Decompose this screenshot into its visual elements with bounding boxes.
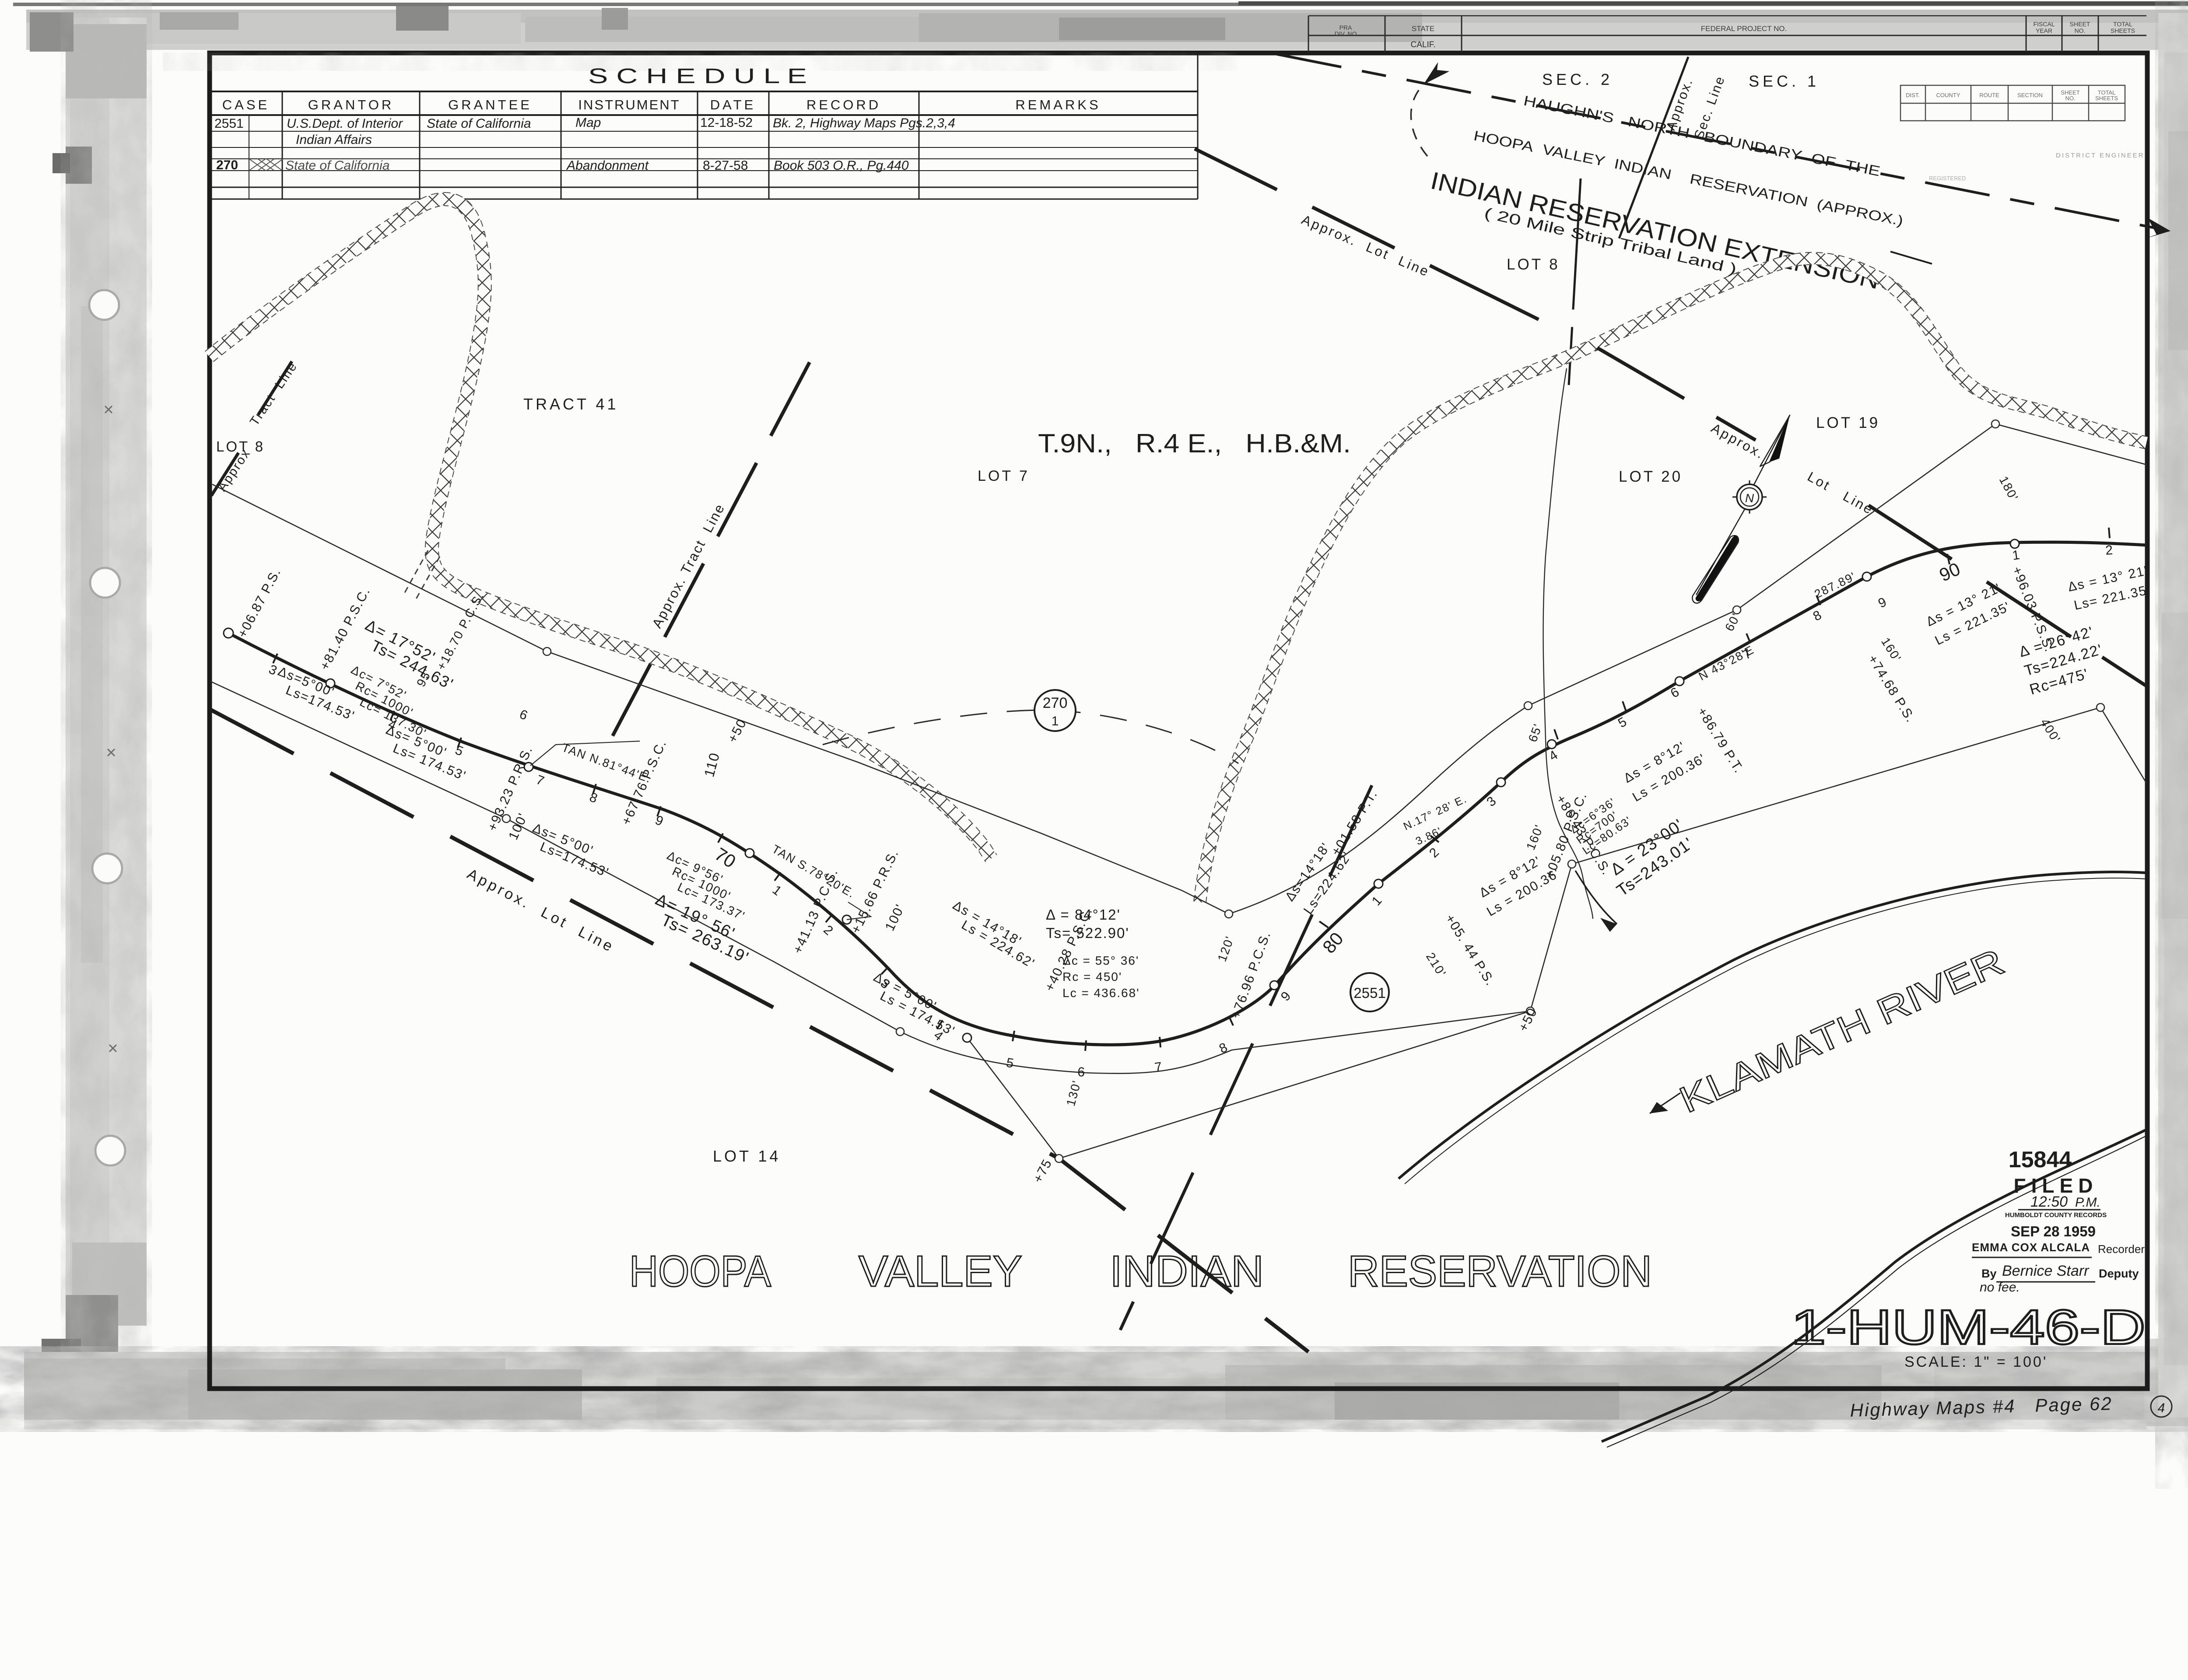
- svg-text:2551: 2551: [1353, 985, 1385, 1001]
- svg-text:INDIAN: INDIAN: [1110, 1247, 1264, 1296]
- svg-text:Δc = 55° 36': Δc = 55° 36': [1062, 954, 1139, 967]
- svg-text:6: 6: [1077, 1065, 1085, 1080]
- svg-text:15844: 15844: [2009, 1147, 2072, 1172]
- svg-text:1: 1: [1052, 714, 1059, 728]
- svg-text:DATE: DATE: [710, 97, 756, 112]
- svg-text:2551: 2551: [214, 116, 244, 131]
- svg-text:P.M.: P.M.: [2075, 1195, 2100, 1210]
- svg-text:Ts= 522.90': Ts= 522.90': [1046, 925, 1129, 941]
- svg-text:2: 2: [2105, 543, 2113, 558]
- svg-text:REGISTERED: REGISTERED: [1929, 175, 1966, 182]
- svg-text:Map: Map: [575, 115, 601, 130]
- svg-text:Abandonment: Abandonment: [566, 158, 649, 173]
- svg-text:LOT 8: LOT 8: [216, 438, 265, 455]
- svg-text:Bk. 2, Highway Maps Pgs.2,3,4: Bk. 2, Highway Maps Pgs.2,3,4: [773, 116, 955, 130]
- svg-text:DIST.: DIST.: [1906, 92, 1920, 98]
- svg-text:SEC. 1: SEC. 1: [1749, 72, 1820, 90]
- svg-text:ROUTE: ROUTE: [1979, 92, 1999, 98]
- svg-text:8-27-58: 8-27-58: [703, 158, 748, 173]
- svg-text:no fee.: no fee.: [1980, 1280, 2020, 1295]
- svg-text:HUMBOLDT COUNTY RECORDS: HUMBOLDT COUNTY RECORDS: [2005, 1211, 2107, 1219]
- svg-text:S C H E D U L E: S C H E D U L E: [588, 65, 807, 88]
- svg-text:RESERVATION: RESERVATION: [1348, 1247, 1652, 1296]
- svg-text:Deputy: Deputy: [2099, 1267, 2139, 1280]
- svg-text:T.9N., R.4 E., H.B.&M.: T.9N., R.4 E., H.B.&M.: [1038, 429, 1351, 458]
- svg-text:GRANTOR: GRANTOR: [308, 97, 394, 112]
- svg-text:VALLEY: VALLEY: [859, 1247, 1022, 1296]
- svg-text:Lc = 436.68': Lc = 436.68': [1062, 986, 1140, 1000]
- svg-text:HOOPA: HOOPA: [629, 1247, 771, 1296]
- svg-text:SCALE: 1" = 100': SCALE: 1" = 100': [1904, 1354, 2048, 1370]
- svg-text:STATE: STATE: [1412, 24, 1434, 33]
- svg-text:State of California: State of California: [427, 116, 531, 131]
- svg-text:LOT 20: LOT 20: [1619, 468, 1683, 485]
- svg-text:FEDERAL PROJECT NO.: FEDERAL PROJECT NO.: [1701, 24, 1787, 33]
- svg-text:1-HUM-46-D: 1-HUM-46-D: [1791, 1300, 2146, 1354]
- svg-text:FISCALYEAR: FISCALYEAR: [2033, 21, 2055, 34]
- svg-text:N: N: [1745, 491, 1754, 505]
- svg-text:RECORD: RECORD: [806, 97, 881, 112]
- svg-text:CASE: CASE: [222, 97, 270, 112]
- svg-text:By: By: [1981, 1267, 1997, 1280]
- svg-text:LOT 19: LOT 19: [1816, 414, 1880, 431]
- svg-text:TOTALSHEETS: TOTALSHEETS: [2095, 89, 2118, 101]
- svg-text:SEC. 2: SEC. 2: [1542, 70, 1613, 88]
- svg-text:LOT 7: LOT 7: [978, 468, 1030, 484]
- svg-text:EMMA COX ALCALA: EMMA COX ALCALA: [1972, 1241, 2090, 1254]
- svg-text:12-18-52: 12-18-52: [700, 115, 753, 130]
- svg-text:TRACT 41: TRACT 41: [523, 395, 618, 413]
- svg-text:State of California: State of California: [285, 158, 389, 173]
- svg-text:Book 503 O.R., Pg.440: Book 503 O.R., Pg.440: [774, 158, 909, 173]
- svg-text:COUNTY: COUNTY: [1936, 92, 1960, 98]
- svg-text:SECTION: SECTION: [2017, 92, 2043, 98]
- svg-text:Indian Affairs: Indian Affairs: [296, 133, 372, 147]
- svg-text:Rc = 450': Rc = 450': [1062, 970, 1122, 983]
- svg-text:Recorder: Recorder: [2098, 1242, 2145, 1256]
- svg-text:U.S.Dept. of Interior: U.S.Dept. of Interior: [287, 116, 403, 131]
- svg-text:SEP 28 1959: SEP 28 1959: [2011, 1223, 2096, 1239]
- svg-text:4: 4: [2158, 1401, 2165, 1415]
- svg-text:12:50: 12:50: [2030, 1193, 2068, 1210]
- svg-text:Δ = 84°12': Δ = 84°12': [1046, 906, 1121, 923]
- svg-text:CALIF.: CALIF.: [1410, 40, 1435, 49]
- svg-text:GRANTEE: GRANTEE: [448, 97, 532, 112]
- svg-text:LOT 14: LOT 14: [713, 1147, 781, 1165]
- svg-text:REMARKS: REMARKS: [1015, 97, 1101, 112]
- svg-text:DISTRICT ENGINEER: DISTRICT ENGINEER: [2056, 152, 2144, 159]
- svg-text:270: 270: [1043, 695, 1068, 711]
- svg-text:Bernice Starr: Bernice Starr: [2002, 1263, 2090, 1279]
- svg-text:INSTRUMENT: INSTRUMENT: [578, 97, 680, 112]
- svg-text:TOTALSHEETS: TOTALSHEETS: [2111, 21, 2135, 34]
- svg-text:270: 270: [216, 158, 238, 172]
- svg-text:LOT 8: LOT 8: [1507, 256, 1560, 273]
